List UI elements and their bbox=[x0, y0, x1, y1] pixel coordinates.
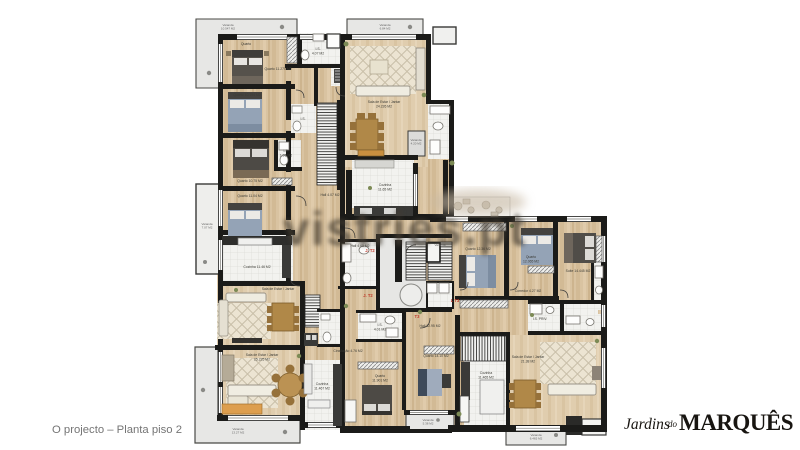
svg-text:11.467 M2: 11.467 M2 bbox=[314, 387, 330, 391]
svg-text:I.S. PRIV.: I.S. PRIV. bbox=[533, 317, 548, 321]
svg-text:Circulação 4.76 M2: Circulação 4.76 M2 bbox=[333, 349, 362, 353]
svg-text:1.95 M2: 1.95 M2 bbox=[280, 154, 292, 158]
svg-text:13.27 M2: 13.27 M2 bbox=[232, 431, 245, 435]
svg-text:4.01 M2: 4.01 M2 bbox=[374, 328, 386, 332]
svg-text:Quarto: Quarto bbox=[241, 42, 251, 46]
svg-text:O projecto – Planta piso 2: O projecto – Planta piso 2 bbox=[52, 424, 182, 436]
svg-text:11.901 M2: 11.901 M2 bbox=[372, 379, 388, 383]
svg-text:Corredor 4.27 M2: Corredor 4.27 M2 bbox=[515, 289, 542, 293]
svg-text:I.S.: I.S. bbox=[300, 117, 305, 121]
svg-text:6.465 M2: 6.465 M2 bbox=[530, 437, 543, 441]
svg-text:Quarto 10.194 M2: Quarto 10.194 M2 bbox=[233, 93, 260, 97]
svg-text:Cozinha: Cozinha bbox=[316, 382, 329, 386]
svg-text:7.07 M2: 7.07 M2 bbox=[202, 226, 213, 230]
svg-text:Quarto 11.270 M2: Quarto 11.270 M2 bbox=[264, 67, 291, 71]
svg-text:25.225 M2: 25.225 M2 bbox=[254, 358, 270, 362]
svg-text:Hall 12.95 M2: Hall 12.95 M2 bbox=[420, 324, 441, 328]
svg-text:Cozinha: Cozinha bbox=[480, 371, 493, 375]
svg-text:J. T2: J. T2 bbox=[363, 293, 373, 298]
svg-text:11.65 M2: 11.65 M2 bbox=[378, 188, 392, 192]
svg-text:Cozinha: Cozinha bbox=[379, 183, 392, 187]
svg-text:10.547 M2: 10.547 M2 bbox=[221, 27, 236, 31]
svg-text:Quarto 11.04 M2: Quarto 11.04 M2 bbox=[237, 194, 262, 198]
svg-text:4.20 M2: 4.20 M2 bbox=[411, 142, 422, 146]
svg-text:vistries.pt: vistries.pt bbox=[283, 202, 527, 255]
svg-text:T3: T3 bbox=[415, 314, 421, 319]
svg-text:Quarto 14.10 M2: Quarto 14.10 M2 bbox=[423, 354, 449, 358]
svg-text:I.S.: I.S. bbox=[283, 149, 288, 153]
svg-text:L T3: L T3 bbox=[451, 298, 460, 303]
svg-text:Sala de Estar / Jantar: Sala de Estar / Jantar bbox=[512, 355, 545, 359]
svg-text:6.84 M2: 6.84 M2 bbox=[380, 27, 391, 31]
svg-text:Suite 14.445 M2: Suite 14.445 M2 bbox=[566, 269, 591, 273]
svg-text:4.07 M2: 4.07 M2 bbox=[312, 52, 324, 56]
svg-text:21.38 M2: 21.38 M2 bbox=[521, 360, 535, 364]
svg-text:Quarto 10.75 M2: Quarto 10.75 M2 bbox=[237, 179, 263, 183]
svg-text:Quarto: Quarto bbox=[526, 255, 536, 259]
svg-text:MARQUÊS: MARQUÊS bbox=[679, 409, 793, 435]
svg-text:Cozinha 11.46 M2: Cozinha 11.46 M2 bbox=[243, 265, 270, 269]
svg-text:Jardins: Jardins bbox=[624, 416, 670, 433]
svg-text:I.S.: I.S. bbox=[315, 47, 320, 51]
svg-text:5.38 M2: 5.38 M2 bbox=[423, 422, 434, 426]
svg-text:do: do bbox=[668, 419, 678, 429]
svg-text:Sala de Estar / Jantar: Sala de Estar / Jantar bbox=[262, 287, 295, 291]
svg-text:Hall 4.07 M2: Hall 4.07 M2 bbox=[320, 193, 339, 197]
svg-text:Sala de Estar / Jantar: Sala de Estar / Jantar bbox=[368, 100, 401, 104]
svg-text:12.065 M2: 12.065 M2 bbox=[523, 260, 539, 264]
svg-text:Quarto: Quarto bbox=[375, 374, 385, 378]
svg-text:24.226 M2: 24.226 M2 bbox=[376, 105, 392, 109]
svg-text:I.S.: I.S. bbox=[377, 323, 382, 327]
svg-text:Sala de Estar / Jantar: Sala de Estar / Jantar bbox=[246, 353, 279, 357]
svg-text:11.465 M2: 11.465 M2 bbox=[478, 376, 494, 380]
